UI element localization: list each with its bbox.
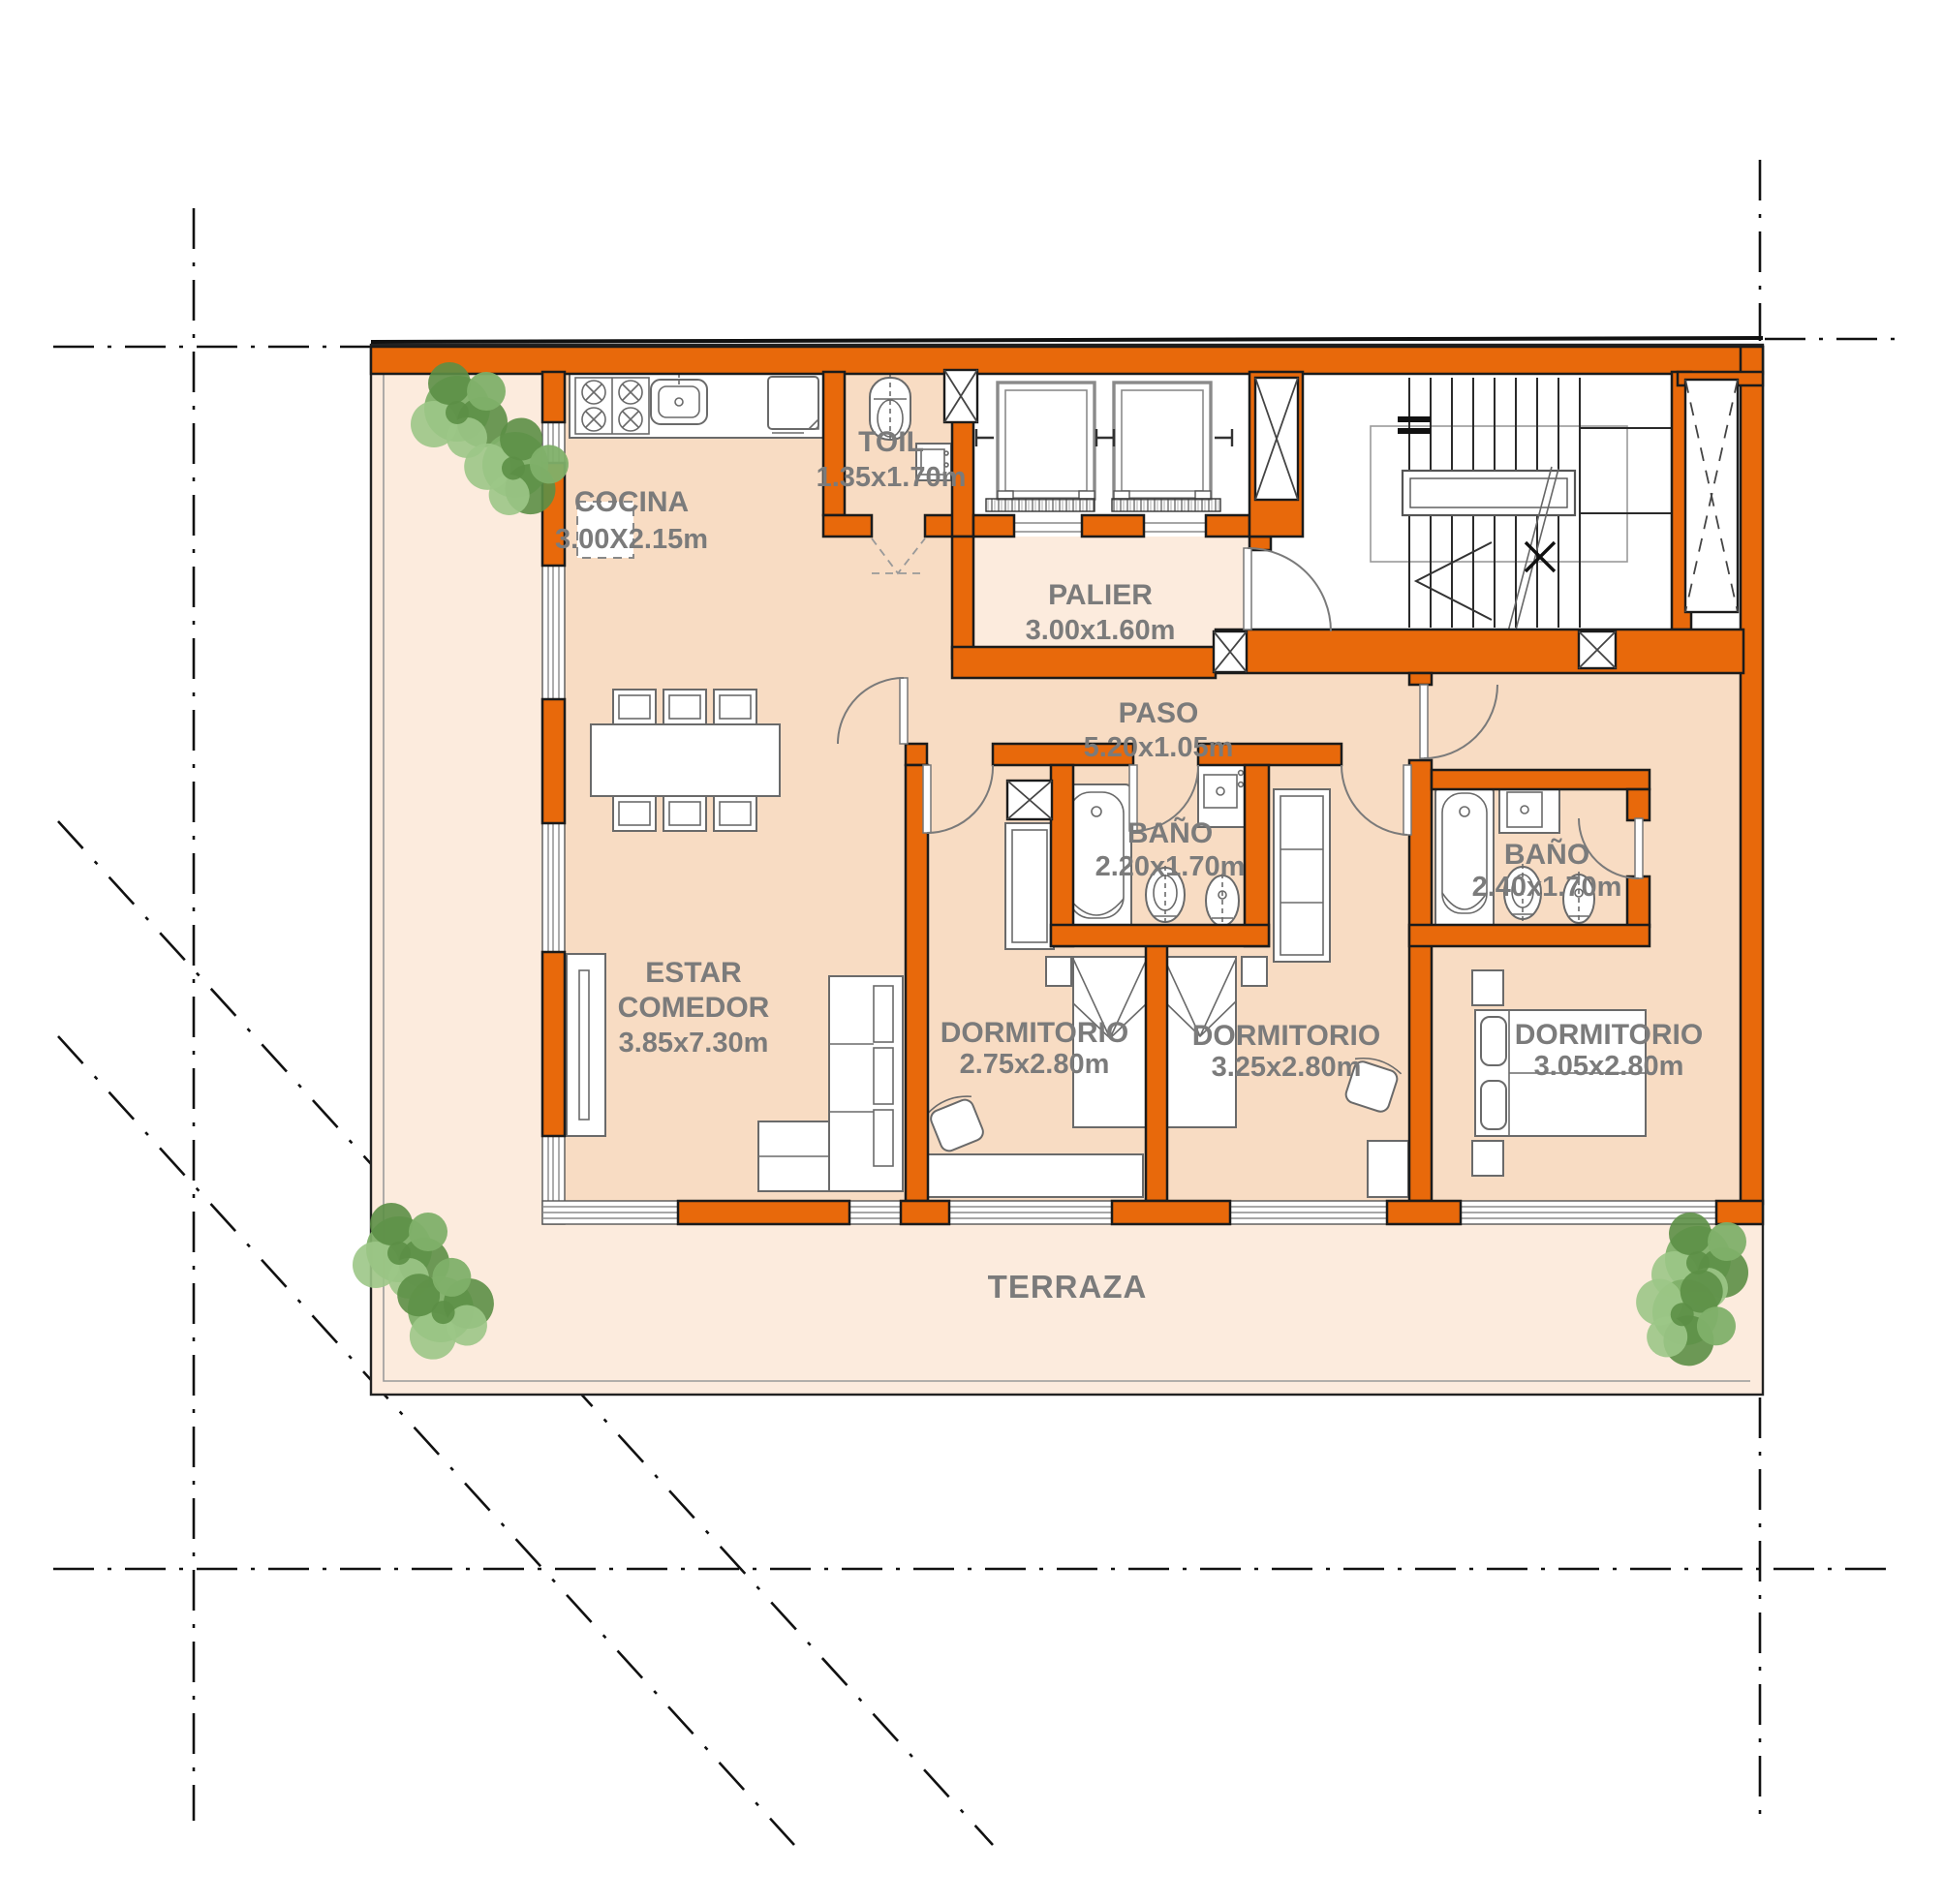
dining-table <box>591 724 780 796</box>
palier-label: PALIER <box>1048 579 1153 611</box>
shaft-elevator-icon <box>1255 378 1298 500</box>
desk1 <box>918 1154 1143 1197</box>
toil-label: TOIL <box>858 426 924 458</box>
property-line-top <box>371 338 1763 342</box>
wall-bed2-corridor <box>1409 760 1432 1201</box>
wall-bottom-pier5 <box>1716 1201 1763 1224</box>
bano2-label: BAÑO <box>1504 838 1589 871</box>
window-left-2 <box>542 566 565 699</box>
wall-palier-left <box>952 537 973 659</box>
wall-bath2-bottom <box>1409 925 1650 946</box>
bano2-dims: 2.40x1.70m <box>1472 872 1622 903</box>
dining-chairs-top <box>613 690 756 724</box>
wall-bath1-left <box>1051 765 1073 946</box>
wall-pier-elev3 <box>1206 515 1249 537</box>
wall-pier-elev2 <box>1082 515 1144 537</box>
nightstand2 <box>1242 957 1267 986</box>
wall-bath2-right-bottom <box>1627 876 1650 927</box>
wall-bath1-bottom <box>1051 925 1269 946</box>
shaft-bedroom1-icon <box>1007 781 1052 819</box>
dining-chairs-bottom <box>613 796 756 831</box>
wall-paso-seg1 <box>906 744 927 765</box>
wall-palier-bottom <box>952 647 1216 678</box>
wall-left-seg4 <box>542 952 565 1136</box>
wall-bottom-pier2 <box>901 1201 949 1224</box>
wall-left-seg3 <box>542 699 565 823</box>
shaft-corridor-icon <box>1579 631 1616 668</box>
wall-bottom-pier1 <box>678 1201 849 1224</box>
wall-bath2-right-top <box>1627 789 1650 820</box>
wall-toil-bottom-left <box>823 515 872 537</box>
elevator-1-sill <box>986 499 1095 511</box>
window-left-3 <box>542 823 565 952</box>
bathtub2-icon <box>1435 786 1494 934</box>
dorm3-dims: 3.05x2.80m <box>1534 1051 1684 1082</box>
dorm2-label: DORMITORIO <box>1192 1020 1380 1052</box>
wall-kitchen-toil <box>823 372 845 515</box>
estar-dims: 3.85x7.30m <box>619 1028 769 1059</box>
wall-top <box>371 347 1763 374</box>
terraza-label: TERRAZA <box>988 1269 1148 1305</box>
wall-pier-elev1 <box>973 515 1014 537</box>
dorm1-label: DORMITORIO <box>941 1017 1128 1049</box>
window-living-2 <box>849 1201 901 1224</box>
floor-plan-page: COCINA 3.00X2.15m TOIL 1.35x1.70m PALIER… <box>0 0 1943 1904</box>
cocina-dims: 3.00X2.15m <box>555 524 708 555</box>
bano1-dims: 2.20x1.70m <box>1095 851 1246 882</box>
stairs-level-mark-2 <box>1398 428 1431 434</box>
elevator-1-icon <box>998 383 1095 499</box>
wall-below-stairs <box>1216 630 1743 673</box>
palier-opening-sill-2 <box>1144 523 1206 532</box>
wall-bed2-corridor-top <box>1409 673 1432 685</box>
shaft-palier-icon <box>1214 631 1247 672</box>
bano1-label: BAÑO <box>1127 816 1213 849</box>
window-bedroom2 <box>1230 1201 1387 1224</box>
toil-dims: 1.35x1.70m <box>817 462 967 493</box>
shaft-toil-icon <box>944 370 977 422</box>
paso-label: PASO <box>1119 697 1199 729</box>
kitchen-sink-icon <box>651 374 707 424</box>
elevator-2-sill <box>1112 499 1220 511</box>
fridge-icon <box>768 377 818 433</box>
cocina-label: COCINA <box>574 486 689 518</box>
wall-left-seg1 <box>542 372 565 422</box>
wall-bath1-right <box>1245 765 1269 946</box>
dining-set <box>591 690 780 831</box>
nightstand3a <box>1472 970 1503 1005</box>
closet1 <box>1005 823 1054 949</box>
wall-bottom-pier3 <box>1112 1201 1230 1224</box>
shaft-stair-icon <box>1685 380 1738 612</box>
wall-bath2-top <box>1432 770 1650 789</box>
elevator-2-icon <box>1114 383 1211 499</box>
tv-unit <box>567 954 605 1136</box>
dorm1-dims: 2.75x2.80m <box>960 1049 1110 1080</box>
wall-bed1-bed2 <box>1146 944 1167 1201</box>
palier-dims: 3.00x1.60m <box>1026 615 1176 646</box>
window-bedroom1 <box>949 1201 1112 1224</box>
nightstand3b <box>1472 1141 1503 1176</box>
stairs-level-mark-1 <box>1398 416 1431 422</box>
wall-right <box>1741 347 1763 1204</box>
estar-label-1: ESTAR <box>645 957 742 989</box>
dorm2-dims: 3.25x2.80m <box>1212 1052 1362 1083</box>
paso-dims: 5.20x1.05m <box>1084 732 1234 763</box>
estar-label-2: COMEDOR <box>618 992 770 1024</box>
dorm3-label: DORMITORIO <box>1515 1019 1703 1051</box>
palier-opening-sill-1 <box>1014 523 1082 532</box>
desk2 <box>1368 1141 1408 1197</box>
floor-plan-drawing: COCINA 3.00X2.15m TOIL 1.35x1.70m PALIER… <box>0 0 1943 1904</box>
window-living-1 <box>542 1201 678 1224</box>
closet2 <box>1274 789 1330 962</box>
nightstand1 <box>1046 957 1071 986</box>
wall-bottom-pier4 <box>1387 1201 1461 1224</box>
corridor-floor <box>1409 673 1741 770</box>
